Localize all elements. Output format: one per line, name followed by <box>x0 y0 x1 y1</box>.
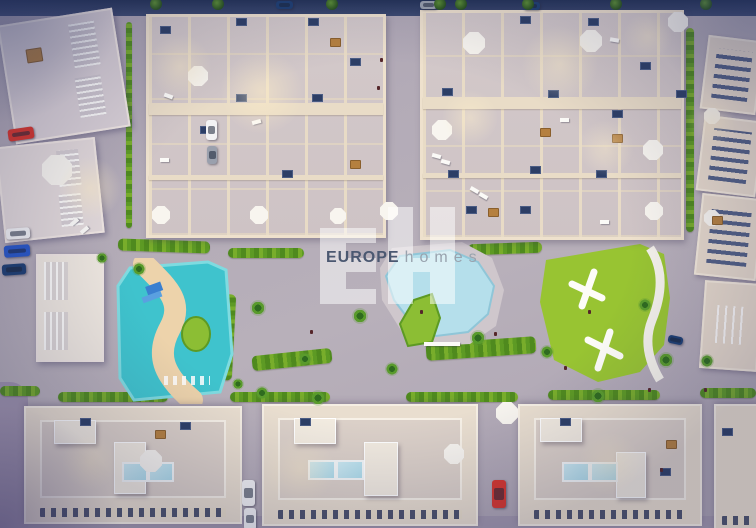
brand-text-row: EUROPE homes <box>326 249 483 267</box>
solar-panel <box>640 62 651 70</box>
car-red <box>492 480 506 508</box>
car-blue <box>4 244 31 258</box>
car-navy <box>276 1 293 9</box>
terrace-furniture <box>712 216 723 225</box>
sun-lounger <box>610 37 620 43</box>
umbrella <box>668 12 688 32</box>
solar-panel <box>520 206 531 214</box>
sun-lounger <box>164 93 174 100</box>
brand-suffix: homes <box>405 249 483 267</box>
umbrella <box>42 155 72 185</box>
street-tree <box>610 0 622 10</box>
umbrella <box>432 120 452 140</box>
sun-lounger <box>470 186 480 194</box>
pedestrian <box>648 388 651 392</box>
umbrella <box>580 30 602 52</box>
car-gray <box>207 146 217 164</box>
sun-lounger <box>560 118 569 122</box>
logo-e-arm-top <box>346 228 376 243</box>
palm-tree <box>310 390 326 406</box>
solar-panel <box>448 170 459 178</box>
solar-panel <box>350 58 361 66</box>
sun-lounger <box>433 342 442 346</box>
sun-lounger <box>442 342 451 346</box>
street-tree <box>212 0 224 10</box>
umbrella <box>463 32 485 54</box>
palm-tree <box>250 300 266 316</box>
pedestrian <box>704 388 707 392</box>
palm-tree <box>590 388 606 404</box>
sun-lounger <box>252 119 262 125</box>
palm-tree <box>470 330 486 346</box>
solar-panel <box>520 16 531 24</box>
sun-lounger <box>80 226 89 235</box>
terrace-furniture <box>488 208 499 217</box>
sun-lounger <box>479 192 489 200</box>
palm-tree <box>700 354 714 368</box>
solar-panel <box>300 418 311 426</box>
pedestrian <box>380 58 383 62</box>
solar-panel <box>236 18 247 26</box>
street-tree <box>150 0 162 10</box>
umbrella <box>704 108 720 124</box>
solar-panel <box>530 166 541 174</box>
street-tree <box>455 0 467 10</box>
terrace-furniture <box>330 38 341 47</box>
car-navy <box>667 335 683 346</box>
pedestrian <box>588 310 591 314</box>
car-white <box>244 508 256 528</box>
umbrella <box>444 444 464 464</box>
street-tree <box>434 0 446 10</box>
palm-tree <box>132 262 146 276</box>
logo-e-arm-bottom <box>346 289 376 304</box>
car-red <box>7 126 34 142</box>
sun-lounger <box>70 218 79 227</box>
solar-panel <box>282 170 293 178</box>
solar-panel <box>722 428 733 436</box>
solar-panel <box>236 94 247 102</box>
car-white <box>242 480 255 506</box>
terrace-furniture <box>350 160 361 169</box>
solar-panel <box>560 418 571 426</box>
terrace-furniture <box>666 440 677 449</box>
solar-panel <box>308 18 319 26</box>
pedestrian <box>660 468 663 472</box>
palm-tree <box>298 352 312 366</box>
solar-panel <box>80 418 91 426</box>
car-white <box>206 120 217 140</box>
pedestrian <box>377 86 380 90</box>
terrace-furniture <box>540 128 551 137</box>
umbrella <box>188 66 208 86</box>
sun-lounger <box>600 220 609 224</box>
solar-panel <box>180 422 191 430</box>
palm-tree <box>96 252 108 264</box>
umbrella <box>496 402 518 424</box>
sun-lounger <box>160 158 169 162</box>
solar-panel <box>612 110 623 118</box>
solar-panel <box>442 88 453 96</box>
terrace-furniture <box>612 134 623 143</box>
umbrella <box>645 202 663 220</box>
umbrella <box>140 450 162 472</box>
aerial-render-canvas: EUROPE homes <box>0 0 756 528</box>
solar-panel <box>588 18 599 26</box>
sun-lounger <box>432 153 442 159</box>
brand-name: EUROPE <box>326 249 400 267</box>
pedestrian <box>310 330 313 334</box>
solar-panel <box>548 90 559 98</box>
palm-tree <box>658 352 674 368</box>
street-tree <box>326 0 338 10</box>
palm-tree <box>385 362 399 376</box>
palm-tree <box>638 298 652 312</box>
pedestrian <box>564 366 567 370</box>
sun-lounger <box>451 342 460 346</box>
pedestrian <box>494 332 497 336</box>
solar-panel <box>466 206 477 214</box>
street-tree <box>700 0 712 10</box>
car-navy <box>2 263 27 276</box>
sun-lounger <box>424 342 433 346</box>
car-white <box>6 227 31 240</box>
watermark: EUROPE homes <box>318 205 458 313</box>
sun-lounger <box>441 159 451 165</box>
umbrella <box>250 206 268 224</box>
umbrella <box>643 140 663 160</box>
solar-panel <box>676 90 687 98</box>
umbrella <box>152 206 170 224</box>
terrace-furniture <box>155 430 166 439</box>
palm-tree <box>540 345 554 359</box>
solar-panel <box>160 26 171 34</box>
palm-tree <box>232 378 244 390</box>
palm-tree <box>255 386 269 400</box>
solar-panel <box>312 94 323 102</box>
solar-panel <box>596 170 607 178</box>
